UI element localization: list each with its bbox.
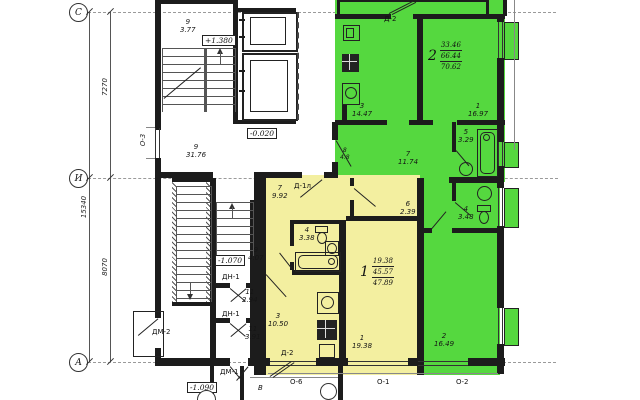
- cabinet-icon: [319, 344, 335, 358]
- axis-marker-bottom-2: [320, 383, 337, 400]
- window-o3: [155, 128, 160, 158]
- wall: [339, 220, 346, 362]
- wall: [468, 358, 505, 366]
- window-tag-o6: О-6: [290, 379, 303, 386]
- window-sill-line: [268, 373, 498, 374]
- room-label-corridor: 931.76: [186, 143, 206, 159]
- wall: [409, 120, 433, 125]
- wall: [155, 0, 237, 4]
- dimension-8070: 8070: [101, 247, 109, 287]
- wall: [497, 226, 504, 308]
- stove-icon: [317, 320, 337, 340]
- dimension-15340: 15340: [80, 185, 88, 229]
- room-label-lobby2: 113.91: [245, 325, 261, 341]
- stair-flight-basement: [176, 186, 212, 302]
- room-label-lobby1: 112.94: [242, 288, 258, 304]
- window-sill-box: [504, 308, 519, 346]
- wall: [290, 220, 346, 224]
- wall: [248, 358, 270, 366]
- window-right-2: [498, 142, 503, 166]
- kitchen-sink-bowl: [321, 296, 334, 309]
- room-label-apt2-hall: 711.74: [398, 150, 418, 166]
- stove-icon: [342, 54, 359, 72]
- apartment-2-summary: 2 33.46 66.44 70.62: [428, 40, 462, 72]
- elevator-1-car: [250, 17, 286, 45]
- window-tag-o2: О-2: [456, 379, 469, 386]
- window-tag-o3: О-3: [139, 125, 147, 155]
- washbasin-icon: [459, 162, 473, 176]
- window-tag-o1: О-1: [377, 379, 390, 386]
- window-sill-tick: [146, 127, 155, 128]
- axis-letter-c: С: [75, 8, 82, 18]
- wall: [497, 58, 504, 142]
- wall: [210, 306, 216, 358]
- wall: [350, 200, 354, 218]
- window-right-1: [498, 22, 503, 58]
- wall: [452, 183, 456, 201]
- apartment-1-areas: 19.38 45.57 47.89: [372, 256, 394, 288]
- wall: [452, 228, 502, 233]
- apartment-2-areas: 33.46 66.44 70.62: [440, 40, 462, 72]
- wall: [216, 283, 230, 288]
- axis-marker-c: С: [69, 3, 88, 22]
- wall: [497, 14, 504, 22]
- wall: [486, 0, 489, 14]
- elevator-door-tick: [239, 70, 245, 72]
- wall: [337, 0, 340, 14]
- door-tag-d1l: Д-1л: [294, 183, 311, 190]
- wall: [420, 228, 432, 233]
- wall: [335, 120, 387, 125]
- dimension-7270: 7270: [101, 67, 109, 107]
- room-label-stair-low: 94.07: [248, 246, 264, 262]
- axis-letter-i: И: [75, 174, 83, 184]
- stair-flight-upper-right: [206, 48, 236, 112]
- room-label-stair-top: 93.77: [180, 18, 196, 34]
- wall: [413, 14, 505, 19]
- stair-arrow-stem: [220, 52, 221, 64]
- wall: [342, 104, 347, 120]
- room-label-apt1-bath: 43.38: [299, 226, 315, 242]
- wall: [408, 358, 418, 366]
- wall: [290, 224, 294, 246]
- wall: [449, 177, 502, 183]
- stair-arrow-stem: [232, 207, 233, 219]
- wall: [338, 366, 343, 400]
- axis-letter-a: А: [75, 358, 82, 368]
- door-tag-d2-top: Д-2: [384, 16, 396, 23]
- apartment-1-number: 1: [360, 264, 369, 280]
- room-label-apt2-bedroom: 216.49: [434, 332, 454, 348]
- elevation-mark-floor: -0.020: [247, 128, 277, 139]
- wall: [155, 0, 161, 130]
- stair-down-arrow: [187, 294, 193, 300]
- dimension-line-inner: [110, 12, 111, 362]
- kitchen-sink-bowl: [345, 87, 357, 99]
- wall: [216, 318, 230, 323]
- elevator-door-tick: [239, 36, 245, 38]
- window-sill-tick: [146, 158, 155, 159]
- room-label-vestibule: В: [258, 384, 263, 392]
- wall: [350, 178, 354, 186]
- wall: [335, 14, 391, 19]
- window-right-4: [498, 308, 503, 344]
- window-right-3: [498, 188, 503, 226]
- dimension-line-outer: [89, 12, 90, 362]
- door-tag-d2-low: Д-2: [281, 350, 293, 357]
- door-tag-dm1: ДМ-1: [220, 369, 239, 376]
- elevator-shaft-open-side: [297, 12, 299, 120]
- room-label-apt1-kitchen: 310.50: [268, 312, 288, 328]
- axis-marker-a: А: [69, 353, 88, 372]
- window-o1: [348, 361, 408, 366]
- window-sill-box: [504, 142, 519, 168]
- toilet-bowl: [479, 211, 489, 224]
- room-label-apt2-bath: 53.29: [458, 128, 474, 144]
- room-label-apt1-living: 119.38: [352, 334, 372, 350]
- wall: [417, 178, 424, 375]
- wall: [452, 122, 456, 152]
- elevator-door-tick: [239, 19, 245, 21]
- wall: [155, 158, 161, 318]
- window-o2: [418, 361, 468, 366]
- room-label-apt1-hall: 79.92: [272, 184, 288, 200]
- room-label-apt1-storage: 62.39: [400, 200, 416, 216]
- stove-grid: [349, 54, 350, 70]
- bathtub-drain: [328, 258, 335, 265]
- room-label-apt2-kitchen: 314.47: [352, 102, 372, 118]
- elevation-mark-stair: +1.380: [202, 35, 236, 46]
- room-label-apt2-wc: 43.48: [458, 205, 474, 221]
- balcony-rail-line: [514, 0, 515, 150]
- room-label-apt2-niche: 84.8: [340, 148, 350, 162]
- wall: [155, 358, 230, 366]
- wall: [417, 19, 423, 122]
- elevator-door-tick: [239, 90, 245, 92]
- door-tag-dn1-b: ДН-1: [222, 311, 240, 318]
- washbasin-icon: [477, 186, 492, 201]
- apartment-1-highlight: [254, 175, 420, 375]
- floor-plan: С И А 7270 15340 8070: [0, 0, 640, 400]
- window-sill-box: [504, 22, 519, 60]
- apartment-1-summary: 1 19.38 45.57 47.89: [360, 256, 394, 288]
- room-label-apt2-living: 116.97: [468, 102, 488, 118]
- stair-arrow-stem: [190, 282, 191, 294]
- wall: [332, 162, 338, 178]
- elevation-mark-mid: -1.070: [215, 255, 245, 266]
- bathtub-drain: [483, 134, 490, 141]
- fridge-inner: [346, 28, 354, 38]
- elevator-2-car: [250, 60, 288, 112]
- wall: [346, 216, 420, 221]
- stove-grid: [325, 320, 326, 338]
- apartment-2-number: 2: [428, 48, 437, 64]
- stair-center-line: [204, 48, 205, 112]
- wall: [316, 358, 348, 366]
- door-tag-dn1-a: ДН-1: [222, 274, 240, 281]
- stove-grid: [317, 328, 335, 329]
- door-tag-dm2: ДМ-2: [152, 329, 171, 336]
- window-sill-box: [504, 188, 519, 228]
